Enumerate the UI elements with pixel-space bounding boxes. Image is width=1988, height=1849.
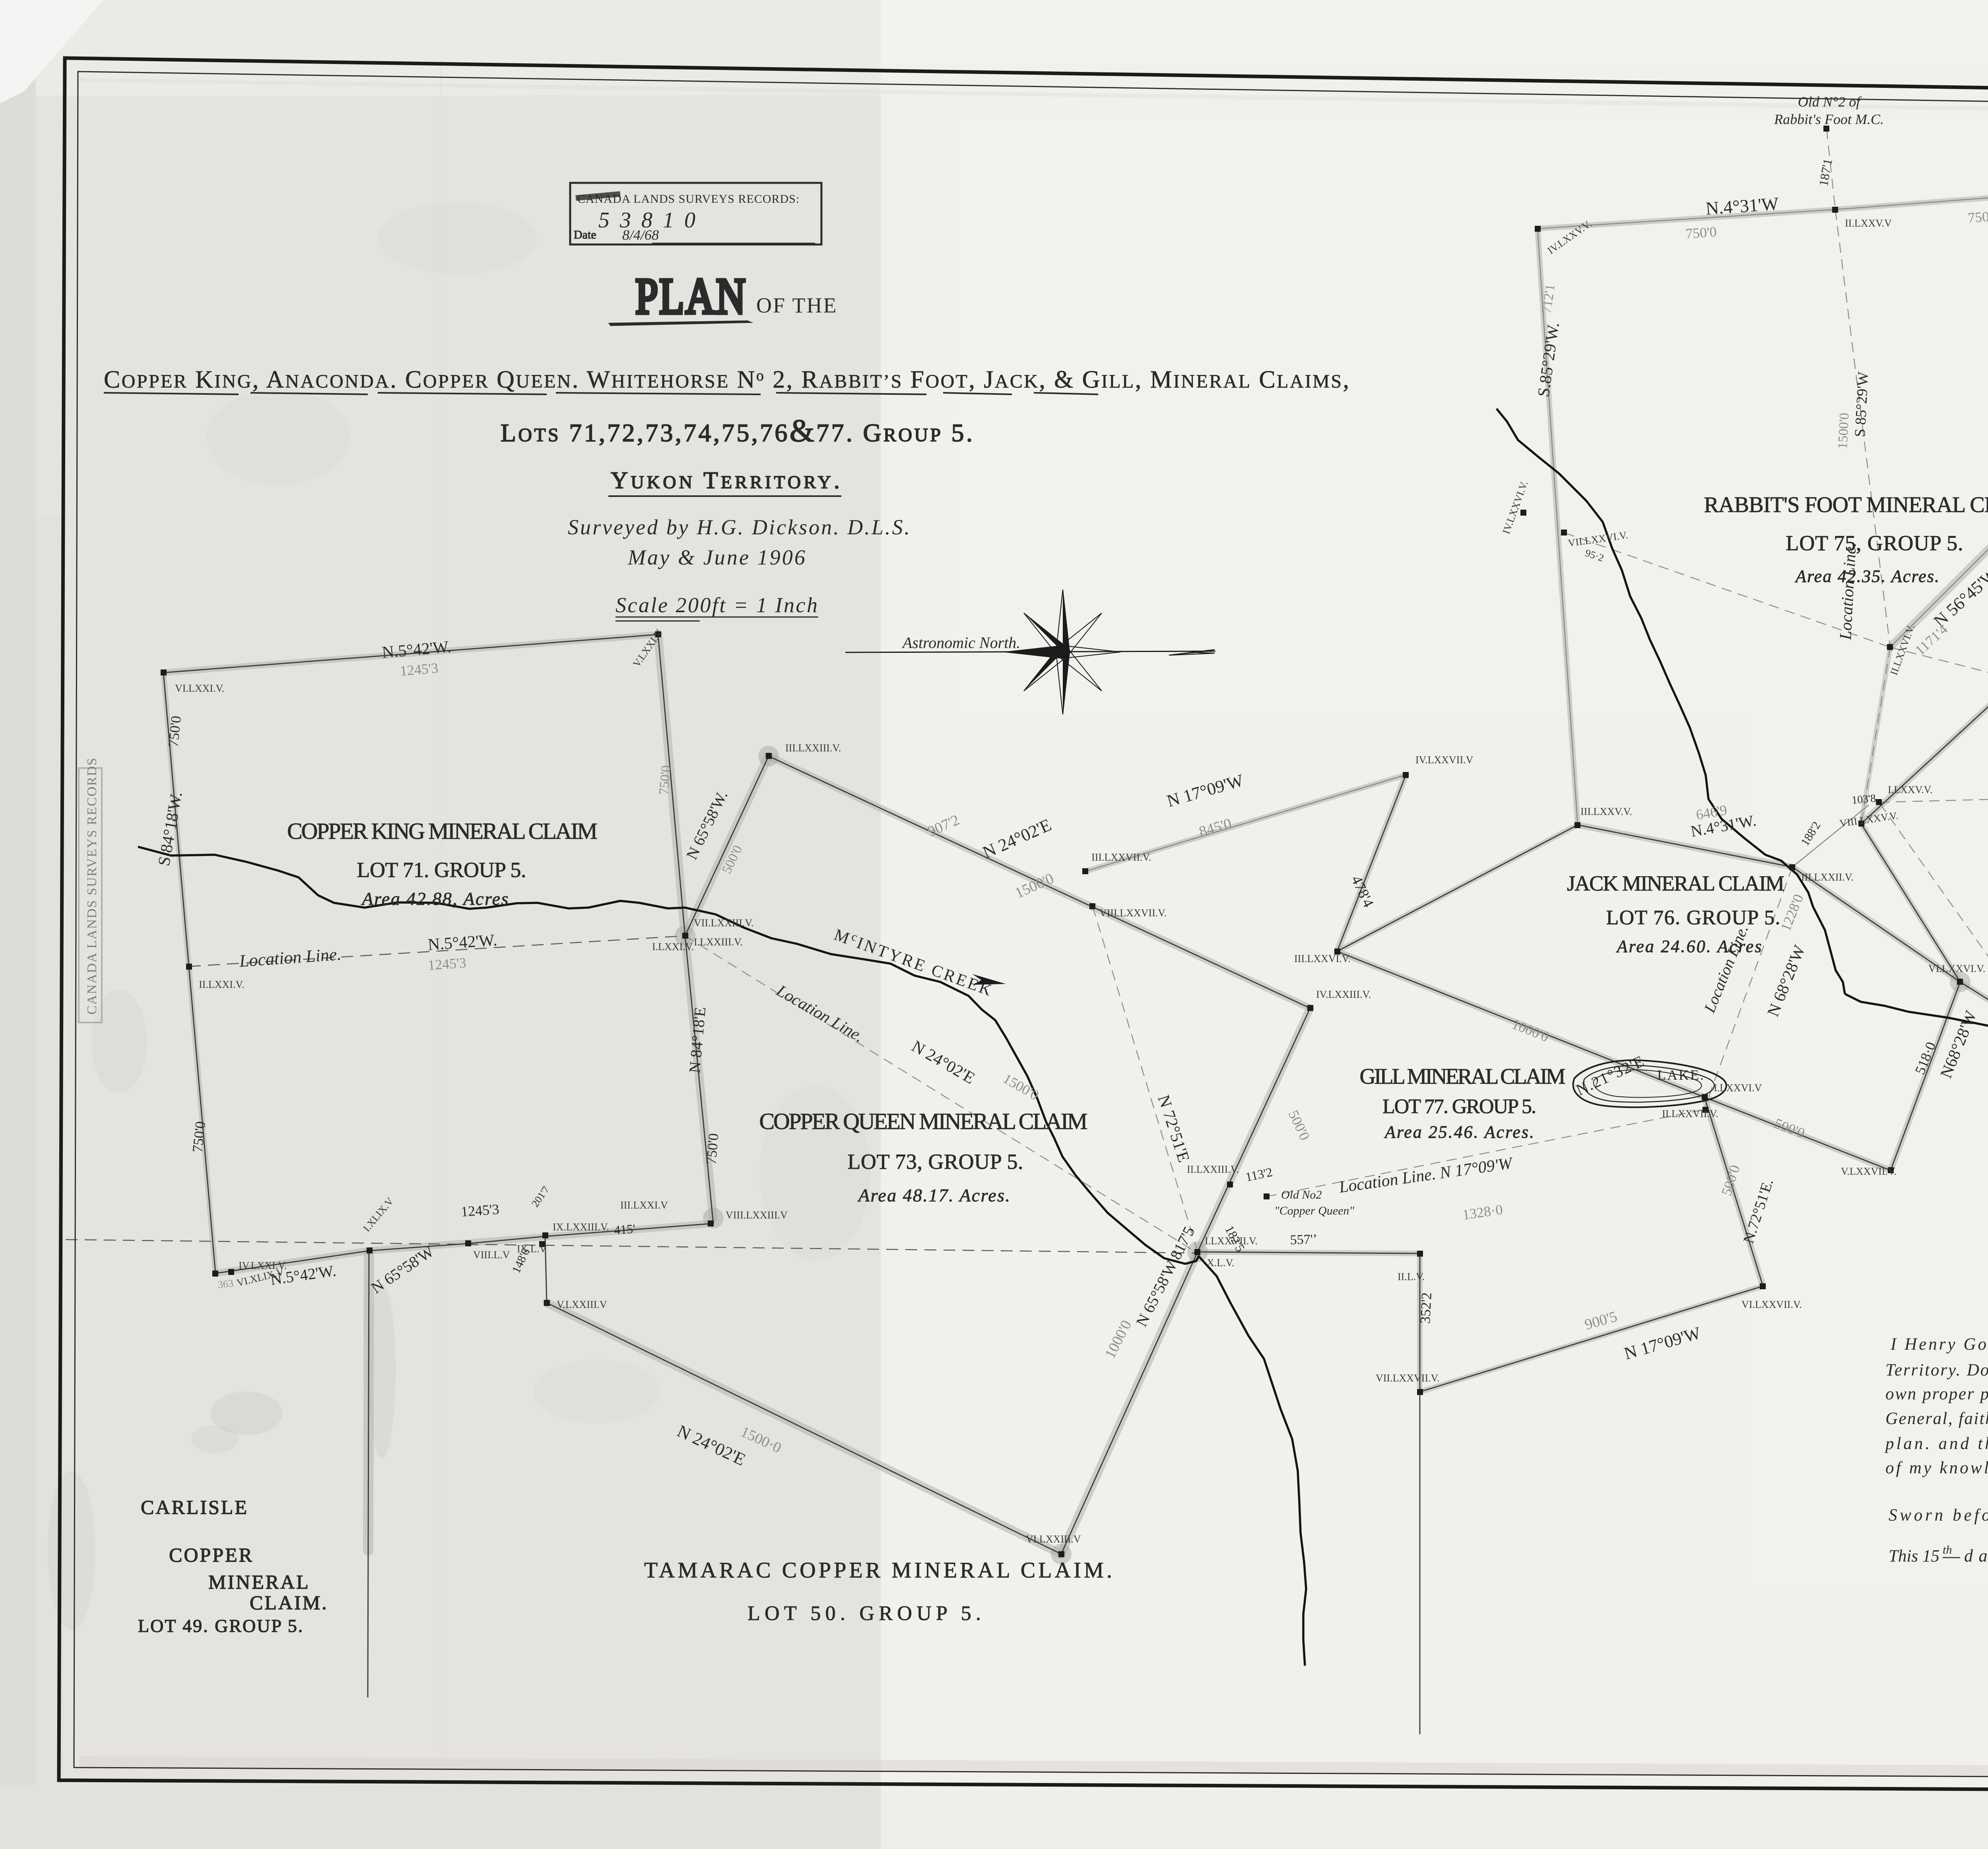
svg-text:CARLISLE: CARLISLE xyxy=(141,1496,248,1518)
svg-text:1500'0: 1500'0 xyxy=(1835,412,1852,449)
svg-text:This 15: This 15 xyxy=(1889,1547,1939,1566)
svg-text:Astronomic North.: Astronomic North. xyxy=(901,634,1020,652)
svg-text:LOT 76. GROUP 5.: LOT 76. GROUP 5. xyxy=(1606,906,1782,929)
svg-text:II.L.V.: II.L.V. xyxy=(1398,1271,1425,1282)
svg-text:JACK MINERAL CLAIM: JACK MINERAL CLAIM xyxy=(1567,871,1786,895)
svg-text:X.L.V.: X.L.V. xyxy=(1207,1257,1235,1269)
svg-text:1245'3: 1245'3 xyxy=(460,1201,500,1220)
svg-text:750'0: 750'0 xyxy=(1685,224,1717,242)
svg-text:Area 25.46. Acres.: Area 25.46. Acres. xyxy=(1384,1122,1535,1142)
svg-text:Area 48.17. Acres.: Area 48.17. Acres. xyxy=(857,1185,1011,1205)
svg-text:"Copper Queen": "Copper Queen" xyxy=(1274,1204,1354,1217)
svg-text:CANADA LANDS SURVEYS RECORDS: CANADA LANDS SURVEYS RECORDS xyxy=(85,757,99,1015)
svg-text:750'0: 750'0 xyxy=(1967,208,1988,226)
svg-text:III.LXXVI.V.: III.LXXVI.V. xyxy=(1294,953,1351,964)
svg-text:VIII.L.V: VIII.L.V xyxy=(473,1249,510,1261)
svg-text:V.LXXIII.V: V.LXXIII.V xyxy=(557,1299,607,1310)
svg-text:III.LXXVII.V.: III.LXXVII.V. xyxy=(1091,852,1151,863)
svg-text:I Henry Godkin Dickson of the: I Henry Godkin Dickson of the Town of Wh… xyxy=(1890,1335,1988,1354)
svg-text:COPPER QUEEN MINERAL CLAIM: COPPER QUEEN MINERAL CLAIM xyxy=(759,1108,1089,1134)
svg-text:I.LXXI.V.: I.LXXI.V. xyxy=(652,941,694,953)
svg-text:750'0: 750'0 xyxy=(656,765,674,795)
svg-text:GILL MINERAL CLAIM: GILL MINERAL CLAIM xyxy=(1360,1064,1567,1089)
svg-text:750'0: 750'0 xyxy=(165,715,184,748)
svg-text:th: th xyxy=(1943,1543,1952,1556)
svg-text:OF THE: OF THE xyxy=(756,293,838,317)
svg-text:CLAIM.: CLAIM. xyxy=(250,1591,328,1614)
svg-text:IX.L.V: IX.L.V xyxy=(517,1243,547,1255)
svg-text:I.LXXVI.V: I.LXXVI.V xyxy=(1714,1082,1762,1094)
svg-text:VIII.LXXVII.V.: VIII.LXXVII.V. xyxy=(1099,907,1167,919)
svg-text:III.LXXI.V: III.LXXI.V xyxy=(620,1199,668,1211)
svg-text:557'’: 557'’ xyxy=(1290,1232,1318,1248)
svg-text:IV.LXXIII.V.: IV.LXXIII.V. xyxy=(1316,989,1371,1000)
svg-text:Area 42.88, Acres: Area 42.88, Acres xyxy=(361,889,510,909)
svg-text:II.LXXI.V.: II.LXXI.V. xyxy=(199,979,244,990)
svg-text:415': 415' xyxy=(613,1221,636,1237)
svg-text:TAMARAC COPPER MINERAL CLAIM.: TAMARAC COPPER MINERAL CLAIM. xyxy=(644,1558,1113,1583)
svg-text:LOT 77. GROUP 5.: LOT 77. GROUP 5. xyxy=(1382,1095,1538,1118)
svg-text:II.LXXVII.V.: II.LXXVII.V. xyxy=(1662,1108,1718,1119)
svg-text:VI.LXXVI.V.: VI.LXXVI.V. xyxy=(1928,963,1985,974)
svg-text:III.LXXII.V.: III.LXXII.V. xyxy=(1801,871,1854,883)
svg-text:II.LXXV.V: II.LXXV.V xyxy=(1845,217,1892,229)
svg-text:IV.LXXVII.V: IV.LXXVII.V xyxy=(1415,754,1474,766)
svg-text:1245'3: 1245'3 xyxy=(399,660,439,679)
svg-text:III.LXXIII.V.: III.LXXIII.V. xyxy=(785,742,841,754)
svg-text:General, faithfully and correc: General, faithfully and correctly execut… xyxy=(1885,1409,1988,1428)
svg-text:PLAN: PLAN xyxy=(635,268,747,324)
svg-text:LOT 75, GROUP 5.: LOT 75, GROUP 5. xyxy=(1786,531,1965,555)
svg-text:LAKE.: LAKE. xyxy=(1657,1067,1705,1083)
svg-text:VI.LXXVII.V.: VI.LXXVII.V. xyxy=(1741,1299,1802,1310)
svg-text:8/4/68: 8/4/68 xyxy=(622,227,659,243)
svg-text:S 85°29'W: S 85°29'W xyxy=(1852,371,1872,438)
svg-text:I.LXXVII.V.: I.LXXVII.V. xyxy=(1205,1235,1258,1247)
svg-text:Date: Date xyxy=(574,228,596,241)
svg-text:VIII.LXXIII.V: VIII.LXXIII.V xyxy=(726,1209,788,1221)
svg-text:III.LXXV.V.: III.LXXV.V. xyxy=(1580,806,1632,817)
svg-text:750'0: 750'0 xyxy=(189,1121,208,1153)
svg-text:Area 42.35. Acres.: Area 42.35. Acres. xyxy=(1794,567,1940,586)
svg-text:VI.LXXI.V.: VI.LXXI.V. xyxy=(175,683,224,694)
svg-text:LOT 49. GROUP 5.: LOT 49. GROUP 5. xyxy=(138,1616,304,1636)
svg-text:II.LXXIII.V.: II.LXXIII.V. xyxy=(1187,1164,1239,1175)
svg-text:COPPER KING MINERAL CLAIM: COPPER KING MINERAL CLAIM xyxy=(287,818,599,844)
svg-text:352'2: 352'2 xyxy=(1417,1292,1435,1324)
svg-text:plan. and that the said plan i: plan. and that the said plan is correct … xyxy=(1884,1434,1988,1453)
svg-text:1245'3: 1245'3 xyxy=(427,955,467,973)
svg-text:Old No2: Old No2 xyxy=(1281,1188,1322,1201)
svg-text:VII.LXXVII.V.: VII.LXXVII.V. xyxy=(1376,1372,1440,1384)
svg-text:LOT 71. GROUP 5.: LOT 71. GROUP 5. xyxy=(357,858,528,882)
svg-text:I.LXXIII.V.: I.LXXIII.V. xyxy=(694,936,743,948)
svg-text:103'8: 103'8 xyxy=(1851,792,1877,807)
svg-text:May & June 1906: May & June 1906 xyxy=(627,545,806,569)
svg-text:Rabbit's Foot M.C.: Rabbit's Foot M.C. xyxy=(1774,111,1884,127)
svg-text:VI.LXXIII.V: VI.LXXIII.V xyxy=(1026,1533,1081,1545)
svg-text:Territory. Dominion Land Surve: Territory. Dominion Land Surveyor, make … xyxy=(1885,1361,1988,1379)
svg-text:V.LXXVII.V.: V.LXXVII.V. xyxy=(1841,1166,1897,1177)
svg-text:LOT 73, GROUP 5.: LOT 73, GROUP 5. xyxy=(848,1150,1025,1174)
svg-text:750'0: 750'0 xyxy=(703,1133,722,1165)
svg-text:Surveyed by H.G. Dickson. D.L.: Surveyed by H.G. Dickson. D.L.S. xyxy=(568,515,911,539)
svg-text:I.LXXV.V.: I.LXXV.V. xyxy=(1888,784,1932,795)
svg-text:Old N°2 of: Old N°2 of xyxy=(1798,94,1862,110)
svg-text:RABBIT'S FOOT MINERAL CLAIM: RABBIT'S FOOT MINERAL CLAIM xyxy=(1704,493,1988,517)
svg-text:363: 363 xyxy=(217,1277,234,1290)
svg-text:own proper person according to: own proper person according to law and t… xyxy=(1885,1385,1988,1403)
svg-text:Scale 200ft = 1 Inch: Scale 200ft = 1 Inch xyxy=(615,593,818,617)
svg-text:VII.LXXIII.V.: VII.LXXIII.V. xyxy=(694,917,753,929)
svg-text:MINERAL: MINERAL xyxy=(208,1571,310,1593)
svg-text:COPPER: COPPER xyxy=(169,1544,254,1566)
svg-text:IX.LXXIII.V.: IX.LXXIII.V. xyxy=(553,1221,609,1233)
